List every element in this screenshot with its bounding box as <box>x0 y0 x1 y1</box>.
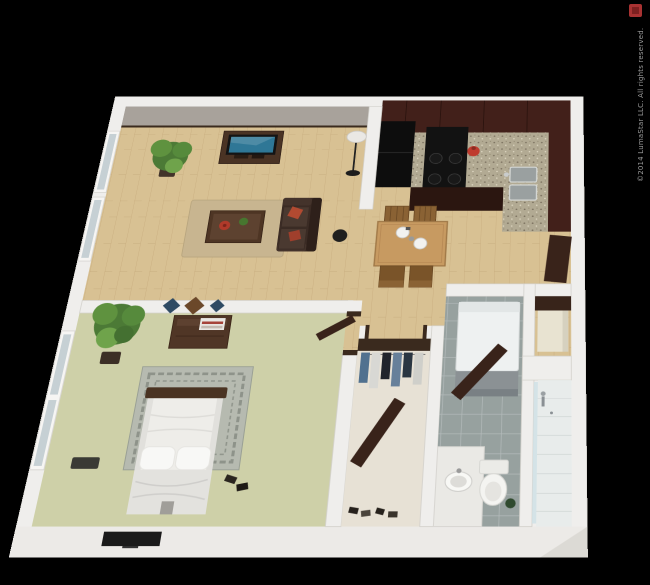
pillow-icon <box>139 447 177 470</box>
bottom-wall-face <box>9 527 588 558</box>
copyright-watermark: ©2014 LumaStar LLC. All rights reserved. <box>634 32 648 182</box>
dining-table <box>374 222 447 266</box>
linen-closet-door <box>535 296 571 310</box>
door-jamb <box>346 311 361 316</box>
dresser <box>169 316 232 349</box>
door-jamb <box>343 350 358 355</box>
floorplan-3d <box>9 96 588 557</box>
sofa <box>276 198 322 252</box>
right-cabinets-icon <box>548 100 571 231</box>
shower <box>532 380 572 526</box>
coffee-table <box>205 211 265 243</box>
utility-top-wall <box>446 284 571 296</box>
wall-base-strip <box>121 125 367 127</box>
floor-mat <box>70 457 100 469</box>
wall <box>522 356 571 380</box>
logo-mark-icon <box>629 4 642 17</box>
vanity-sink-icon <box>433 447 484 527</box>
closet-shelf <box>358 339 432 351</box>
floorplan-image: ©2014 LumaStar LLC. All rights reserved. <box>0 0 650 585</box>
shower-fixture-icon <box>542 396 545 406</box>
wall-tv-icon <box>101 532 162 546</box>
living-wall-face <box>122 107 370 126</box>
pillow-icon <box>174 447 211 470</box>
place-setting-icon <box>413 238 427 249</box>
granite-counter <box>466 133 505 188</box>
footboard <box>145 387 228 398</box>
refrigerator-icon <box>375 121 416 187</box>
toilet-icon <box>478 460 508 505</box>
floorplan-svg <box>9 96 588 557</box>
utility-closets <box>519 284 571 527</box>
bedroom <box>32 297 354 527</box>
tv-stand <box>219 131 284 163</box>
